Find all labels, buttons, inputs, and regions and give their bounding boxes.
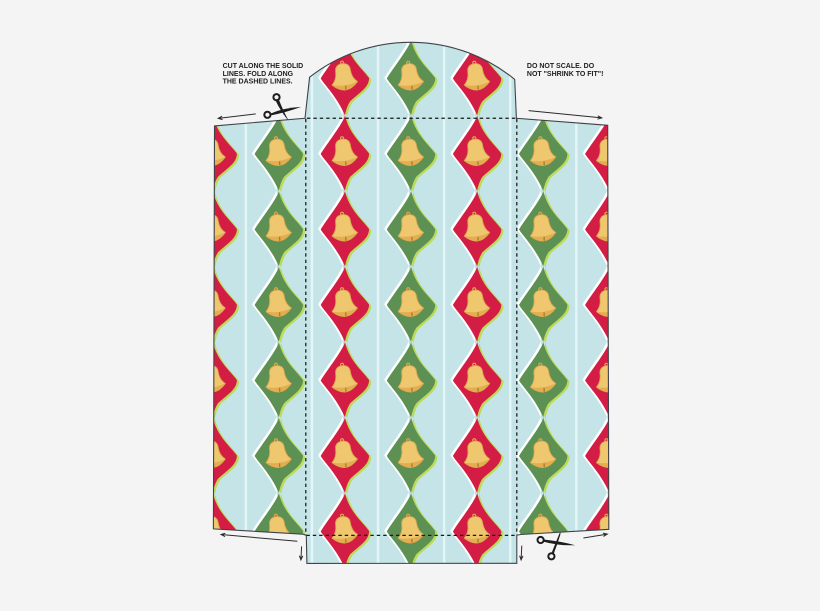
svg-text:THE DASHED LINES.: THE DASHED LINES. [223,79,293,86]
svg-text:LINES. FOLD ALONG: LINES. FOLD ALONG [223,71,294,78]
svg-text:NOT "SHRINK TO FIT"!: NOT "SHRINK TO FIT"! [527,71,604,78]
svg-text:DO NOT SCALE. DO: DO NOT SCALE. DO [527,63,595,70]
svg-text:CUT ALONG THE SOLID: CUT ALONG THE SOLID [223,63,304,70]
